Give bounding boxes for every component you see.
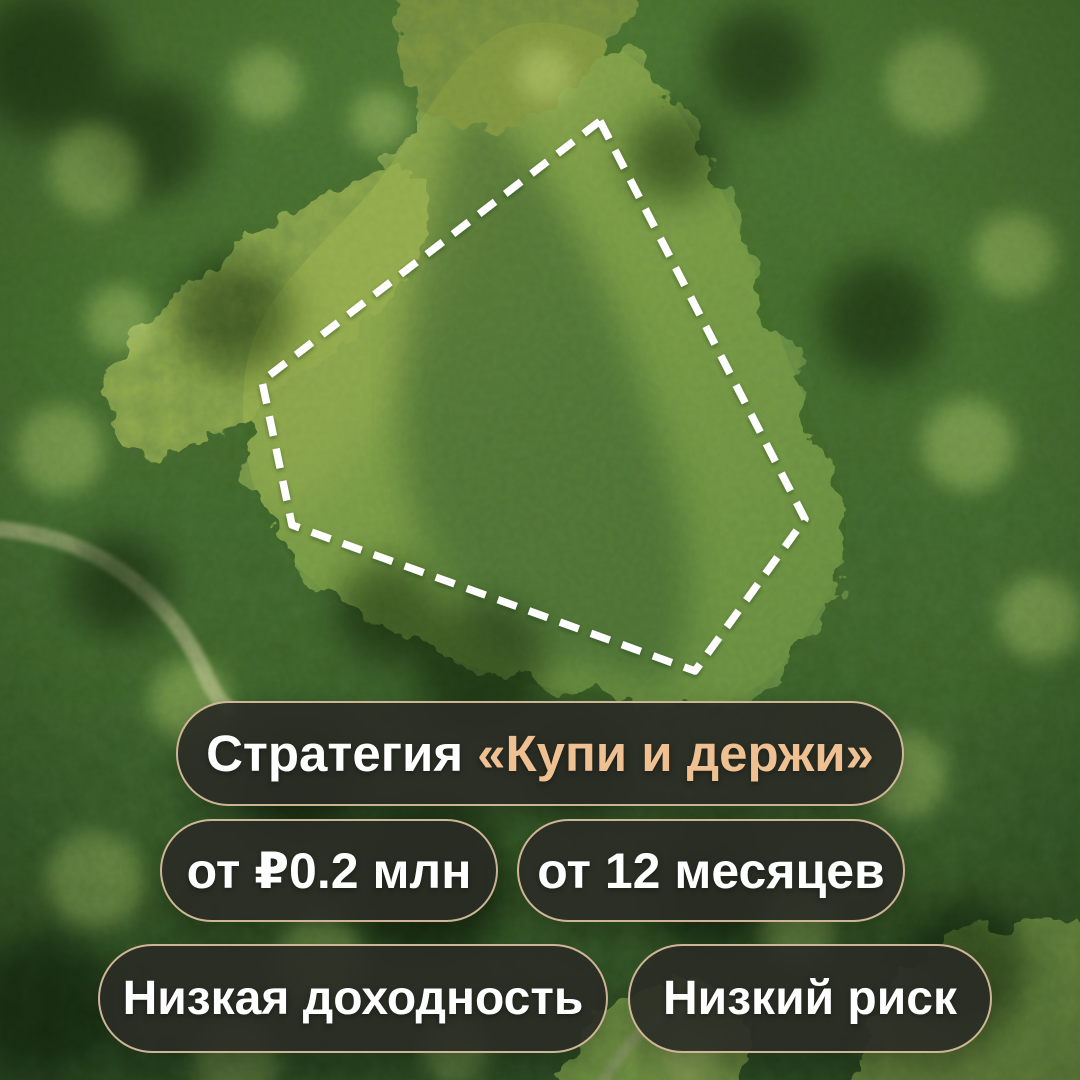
land-plot-card: Стратегия «Купи и держи» от ₽0.2 млн от … — [0, 0, 1080, 1080]
min-investment-label: от ₽0.2 млн — [187, 842, 472, 900]
profitability-label: Низкая доходность — [123, 971, 584, 1026]
aerial-photo-background — [0, 0, 1080, 1080]
strategy-name-label: «Купи и держи» — [477, 724, 874, 783]
risk-label: Низкий риск — [663, 971, 957, 1026]
strategy-badge: Стратегия «Купи и держи» — [176, 701, 904, 806]
strategy-prefix-label: Стратегия — [206, 724, 463, 783]
min-term-badge: от 12 месяцев — [517, 819, 905, 922]
min-investment-badge: от ₽0.2 млн — [160, 819, 498, 922]
risk-badge: Низкий риск — [628, 944, 992, 1053]
min-term-label: от 12 месяцев — [537, 842, 885, 900]
vignette — [0, 0, 1080, 1080]
profitability-badge: Низкая доходность — [98, 944, 608, 1053]
